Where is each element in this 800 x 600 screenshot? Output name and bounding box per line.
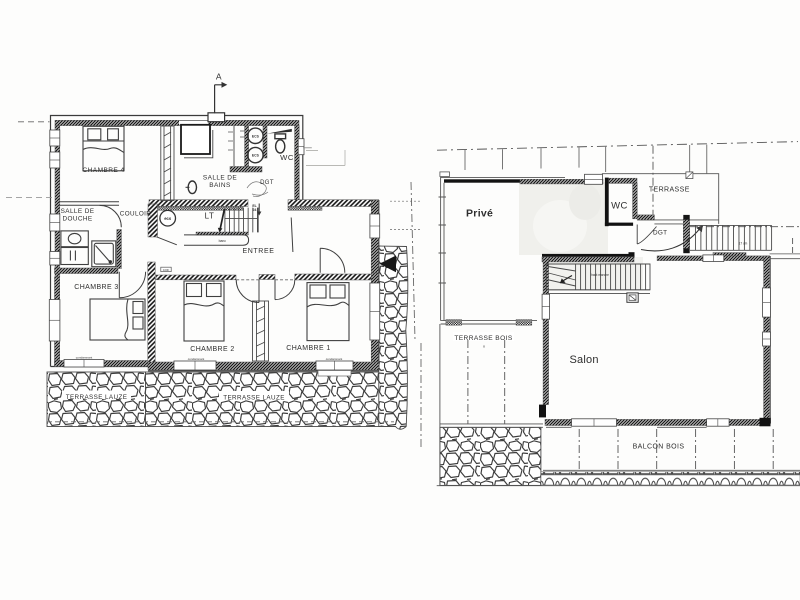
svg-text:DOUCHE: DOUCHE bbox=[62, 216, 92, 223]
svg-text:ECS: ECS bbox=[252, 154, 260, 158]
svg-text:BAINS: BAINS bbox=[209, 182, 231, 189]
svg-text:CHAMBRE 1: CHAMBRE 1 bbox=[286, 345, 330, 352]
svg-text:CHAMBRE 2: CHAMBRE 2 bbox=[190, 346, 234, 353]
svg-text:WC: WC bbox=[280, 153, 294, 162]
svg-text:17 cm: 17 cm bbox=[739, 241, 748, 245]
svg-text:SALLE DE: SALLE DE bbox=[61, 208, 95, 215]
svg-text:TERRASSE: TERRASSE bbox=[649, 186, 690, 193]
svg-text:24: 24 bbox=[253, 208, 257, 212]
svg-text:condamnant: condamnant bbox=[326, 357, 343, 361]
svg-text:BALCON BOIS: BALCON BOIS bbox=[633, 444, 685, 451]
svg-text:x: x bbox=[483, 344, 485, 349]
svg-text:CHAMBRE 3: CHAMBRE 3 bbox=[74, 284, 118, 291]
svg-text:ECS: ECS bbox=[252, 134, 260, 138]
svg-text:TERRASSE BOIS: TERRASSE BOIS bbox=[454, 335, 513, 342]
svg-text:haut marche: haut marche bbox=[591, 273, 609, 277]
svg-text:condamnant: condamnant bbox=[188, 357, 205, 361]
svg-text:CHAMBRE 4: CHAMBRE 4 bbox=[82, 167, 124, 174]
svg-text:SALLE DE: SALLE DE bbox=[203, 175, 238, 182]
svg-text:LT: LT bbox=[205, 212, 215, 221]
svg-text:A: A bbox=[216, 72, 222, 82]
svg-text:banc: banc bbox=[219, 239, 227, 243]
svg-text:DGT: DGT bbox=[653, 229, 667, 236]
svg-text:TERRASSE LAUZE: TERRASSE LAUZE bbox=[66, 394, 128, 401]
svg-text:TERRASSE LAUZE: TERRASSE LAUZE bbox=[223, 394, 285, 401]
svg-text:WC: WC bbox=[611, 200, 628, 211]
svg-text:Salon: Salon bbox=[570, 354, 599, 366]
svg-text:DGT: DGT bbox=[260, 180, 274, 186]
svg-text:condamnant: condamnant bbox=[76, 355, 93, 359]
svg-text:Privé: Privé bbox=[466, 208, 493, 220]
svg-text:COF: COF bbox=[163, 268, 170, 272]
svg-text:COULOIR: COULOIR bbox=[120, 211, 152, 218]
svg-text:ENTREE: ENTREE bbox=[243, 248, 275, 255]
svg-text:ecs: ecs bbox=[164, 216, 172, 221]
